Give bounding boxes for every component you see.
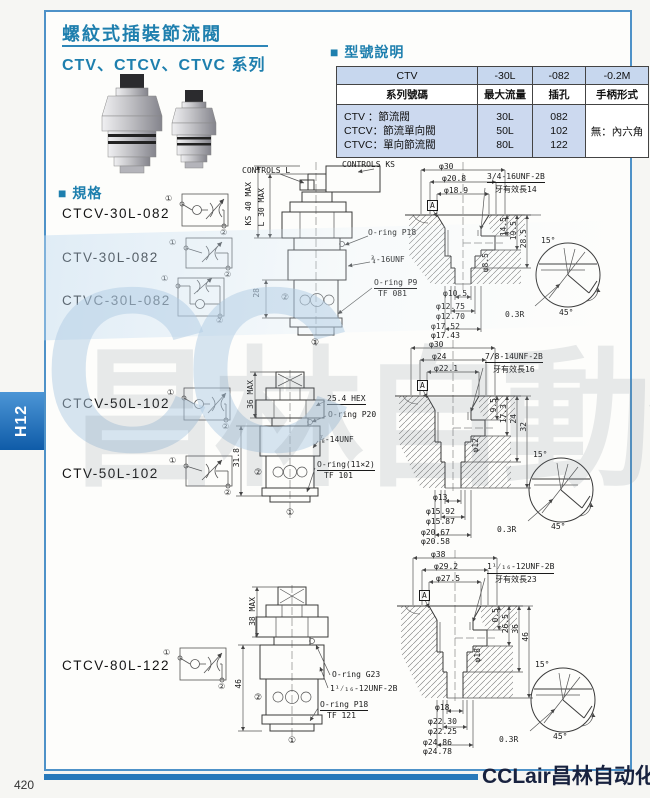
model-label: CTCV-80L-122: [62, 658, 170, 673]
depth-label: 28.5: [519, 229, 528, 248]
diameter-label: φ12.75: [436, 302, 465, 311]
controls-l-note: CONTROLS L: [242, 166, 290, 175]
page-title: 螺紋式插裝節流閥: [62, 20, 222, 46]
depth-label: 32: [519, 422, 528, 432]
datum-a: A: [419, 590, 430, 601]
label-cell: 插孔: [533, 85, 586, 105]
company-logo: CCLair昌林自动化: [482, 760, 650, 790]
diameter-label: φ15.87: [426, 517, 455, 526]
diameter-label: φ18.9: [444, 186, 468, 195]
title-underline: [62, 45, 268, 47]
dim-label: 28: [252, 288, 261, 298]
page-number: 420: [14, 778, 34, 792]
thread-note: 1¹⁄₁₆-12UNF-2B: [487, 562, 554, 574]
diameter-label: φ24: [432, 352, 446, 361]
dim-label: 38 MAX: [248, 597, 257, 626]
angle-label: 15°: [535, 660, 549, 669]
diameter-label: φ27.5: [436, 574, 460, 583]
logo-en: CCLair: [482, 765, 551, 788]
hex-note: 25.4 HEX: [327, 394, 366, 405]
datum-a: A: [427, 200, 438, 211]
catalog-page: { "page": {"tab":"H12","page_number":"42…: [0, 0, 650, 798]
angle-label: 15°: [533, 450, 547, 459]
port-2-marker: ②: [281, 293, 289, 303]
thread-note: 3/4-16UNF-2B: [487, 172, 545, 183]
thread-note: 1¹⁄₁₆-12UNF-2B: [330, 684, 397, 694]
table-code-row: CTV -30L -082 -0.2M: [337, 67, 649, 85]
depth-label: 19.5: [509, 221, 518, 240]
port-1: ①: [165, 194, 172, 203]
series-cell: CTV ：節流閥 CTCV：節流單向閥 CTVC：單向節流閥: [337, 105, 478, 158]
port-2-marker: ②: [254, 468, 262, 478]
port-1-marker: ①: [288, 736, 296, 746]
chamfer-label: 45°: [553, 732, 567, 741]
valve-drawing-30l: CONTROLS L CONTROLS KS KS 40 MAX L 30 MA…: [238, 158, 423, 353]
diameter-label: φ30: [439, 162, 453, 171]
cavity-drawing-80l: φ38 φ29.2 φ27.5 A 1¹⁄₁₆-12UNF-2B 牙有效長23 …: [395, 548, 640, 793]
label-cell: 系列號碼: [337, 85, 478, 105]
model-label: CTV-30L-082: [62, 250, 159, 265]
diameter-label: φ20.58: [421, 537, 450, 546]
port-1: ①: [167, 388, 174, 397]
model-label: CTV-50L-102: [62, 466, 159, 481]
handle-cell: 無：內六角: [586, 105, 649, 158]
thread-note: 7/8-14UNF-2B: [485, 352, 543, 363]
depth-label: 24: [509, 414, 518, 424]
datum-a: A: [417, 380, 428, 391]
radius-label: 0.3R: [505, 310, 524, 319]
symbol-ctcv: ① ②: [170, 642, 240, 694]
valve-photo-large: [96, 74, 168, 174]
port-1: ①: [161, 274, 168, 283]
port-1: ①: [169, 456, 176, 465]
port-1-marker: ①: [311, 338, 319, 348]
oring-note: O-ring(11×2): [317, 460, 375, 471]
table-body-row: CTV ：節流閥 CTCV：節流單向閥 CTVC：單向節流閥 30L 50L 8…: [337, 105, 649, 158]
oring-note: O-ring P18: [320, 700, 368, 711]
depth-label: 46: [521, 632, 530, 642]
port-2: ②: [216, 316, 223, 325]
dim-label: L 30 MAX: [257, 188, 266, 227]
dim-label: KS 40 MAX: [244, 182, 253, 225]
model-label: CTCV-30L-082: [62, 206, 170, 221]
dim-label: 36 MAX: [246, 380, 255, 409]
series-subtitle: CTV、CTCV、CTVC 系列: [62, 51, 266, 75]
port-1-marker: ①: [286, 508, 294, 518]
radius-label: 0.3R: [499, 735, 518, 744]
port-2: ②: [224, 488, 231, 497]
model-label: CTCV-50L-102: [62, 396, 170, 411]
series-line: CTVC：單向節流閥: [339, 138, 475, 152]
diameter-label: φ10.5: [443, 289, 467, 298]
depth-label: 0.5: [491, 608, 500, 622]
port-2: ②: [218, 682, 225, 691]
symbol-ctv: ① ②: [176, 448, 246, 500]
model-code-table: CTV -30L -082 -0.2M 系列號碼 最大流量 插孔 手柄形式 CT…: [336, 66, 649, 158]
logo-cn: 昌林自动化: [551, 765, 650, 788]
thread-length-note: 牙有效長23: [495, 574, 537, 585]
depth-label: 26.5: [501, 614, 510, 633]
cavity-drawing-30l: φ30 φ20.8 φ18.9 A 3/4-16UNF-2B 牙有效長14 14…: [403, 160, 648, 365]
diameter-label: φ22.30: [428, 717, 457, 726]
diameter-label: φ17.52: [431, 322, 460, 331]
port-1: ①: [163, 648, 170, 657]
bore-label: φ8.5: [481, 253, 490, 272]
port-2: ②: [222, 422, 229, 431]
controls-ks-note: CONTROLS KS: [342, 160, 395, 169]
symbol-ctcv: ① ②: [174, 382, 244, 434]
thread-length-note: 牙有效長16: [493, 364, 535, 375]
angle-label: 15°: [541, 236, 555, 245]
diameter-label: φ22.25: [428, 727, 457, 736]
diameter-label: φ20.67: [421, 528, 450, 537]
diameter-label: φ22.1: [434, 364, 458, 373]
port-2-marker: ②: [254, 693, 262, 703]
port-1: ①: [169, 238, 176, 247]
bore-label: φ12: [471, 438, 480, 452]
hole-cell: 082 102 122: [533, 105, 586, 158]
valve-drawing-50l: 36 MAX 31.8 25.4 HEX O-ring P20 ⅞-14UNF …: [228, 368, 420, 580]
model-label: CTVC-30L-082: [62, 293, 171, 308]
diameter-label: φ30: [429, 340, 443, 349]
depth-label: 14.5: [499, 217, 508, 236]
code-cell: -0.2M: [586, 67, 649, 85]
table-label-row: 系列號碼 最大流量 插孔 手柄形式: [337, 85, 649, 105]
series-line: CTV ：節流閥: [339, 110, 475, 124]
bore-label: φ18: [473, 648, 482, 662]
diameter-label: φ24.78: [423, 747, 452, 756]
flow-cell: 30L 50L 80L: [478, 105, 533, 158]
oring-note: O-ring G23: [332, 670, 380, 679]
diameter-label: φ15.92: [426, 507, 455, 516]
series-line: CTCV：節流單向閥: [339, 124, 475, 138]
cavity-drawing-50l: φ30 φ24 φ22.1 A 7/8-14UNF-2B 牙有效長16 9.5 …: [393, 338, 638, 578]
valve-drawing-80l: 38 MAX 46 O-ring G23 1¹⁄₁₆-12UNF-2B O-ri…: [230, 583, 422, 795]
depth-label: 17.3: [499, 404, 508, 423]
diameter-label: φ38: [431, 550, 445, 559]
section-tab: H12: [0, 392, 44, 450]
section-tab-label: H12: [13, 405, 31, 437]
code-cell: -082: [533, 67, 586, 85]
thread-note: ⅞-14UNF: [320, 435, 354, 444]
diameter-label: φ20.8: [442, 174, 466, 183]
label-cell: 最大流量: [478, 85, 533, 105]
diameter-label: φ24.86: [423, 738, 452, 747]
seal-kit-note: TF 101: [324, 471, 353, 480]
spec-heading: ■ 規格: [58, 183, 102, 203]
chamfer-label: 45°: [551, 522, 565, 531]
seal-kit-note: TF 121: [327, 711, 356, 720]
model-code-heading: ■ 型號說明: [330, 42, 404, 62]
radius-label: 0.3R: [497, 525, 516, 534]
footer-bar: [44, 774, 478, 780]
chamfer-label: 45°: [559, 308, 573, 317]
depth-label: 36: [511, 624, 520, 634]
valve-photo-small: [168, 90, 220, 170]
diameter-label: φ13: [433, 493, 447, 502]
depth-label: 9.5: [489, 398, 498, 412]
symbol-ctvc: ① ②: [168, 274, 238, 326]
diameter-label: φ29.2: [434, 562, 458, 571]
label-cell: 手柄形式: [586, 85, 649, 105]
diameter-label: φ12.70: [436, 312, 465, 321]
code-cell: CTV: [337, 67, 478, 85]
diameter-label: φ18: [435, 703, 449, 712]
oring-note: O-ring P20: [328, 410, 376, 419]
thread-length-note: 牙有效長14: [495, 184, 537, 195]
code-cell: -30L: [478, 67, 533, 85]
thread-note: ¾-16UNF: [371, 255, 405, 264]
